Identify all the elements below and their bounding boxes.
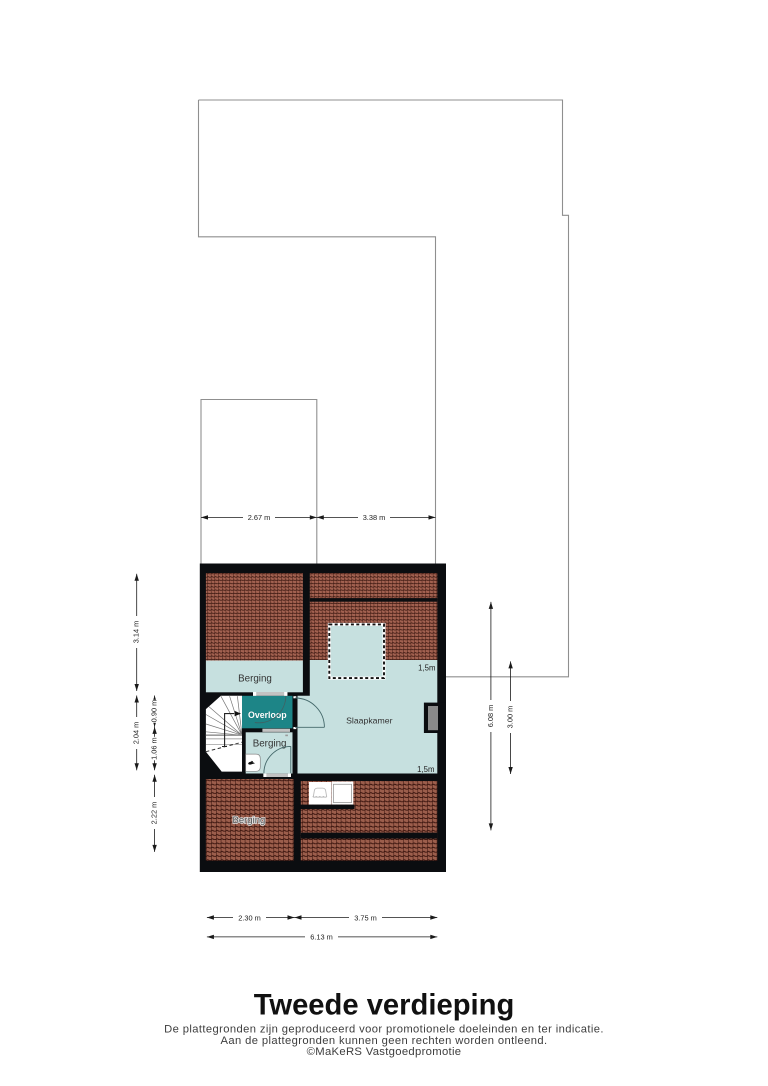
svg-text:2.30 m: 2.30 m	[238, 913, 261, 922]
svg-text:1,5m: 1,5m	[417, 765, 434, 774]
svg-text:©MaKeRS Vastgoedpromotie: ©MaKeRS Vastgoedpromotie	[307, 1046, 462, 1058]
svg-text:1,5m: 1,5m	[418, 664, 435, 673]
svg-text:Aan de plattegronden kunnen ge: Aan de plattegronden kunnen geen rechten…	[221, 1035, 548, 1047]
svg-text:3.75 m: 3.75 m	[354, 913, 377, 922]
svg-text:2.22 m: 2.22 m	[150, 802, 159, 825]
svg-text:3.38 m: 3.38 m	[363, 513, 386, 522]
svg-text:3.00 m: 3.00 m	[506, 706, 515, 729]
svg-text:Slaapkamer: Slaapkamer	[346, 715, 392, 725]
svg-text:Berging: Berging	[238, 673, 272, 684]
svg-text:Tweede verdieping: Tweede verdieping	[254, 990, 515, 1022]
svg-text:Berging: Berging	[233, 815, 266, 826]
svg-text:0.90 m: 0.90 m	[150, 700, 159, 723]
svg-text:6.13 m: 6.13 m	[310, 933, 333, 942]
svg-text:De plattegronden zijn geproduc: De plattegronden zijn geproduceerd voor …	[164, 1024, 604, 1036]
svg-text:2.04 m: 2.04 m	[132, 722, 141, 745]
svg-text:3.14 m: 3.14 m	[132, 621, 141, 644]
svg-text:6.08 m: 6.08 m	[486, 705, 495, 728]
svg-text:1.06 m: 1.06 m	[150, 737, 159, 760]
svg-text:2.67 m: 2.67 m	[248, 513, 271, 522]
